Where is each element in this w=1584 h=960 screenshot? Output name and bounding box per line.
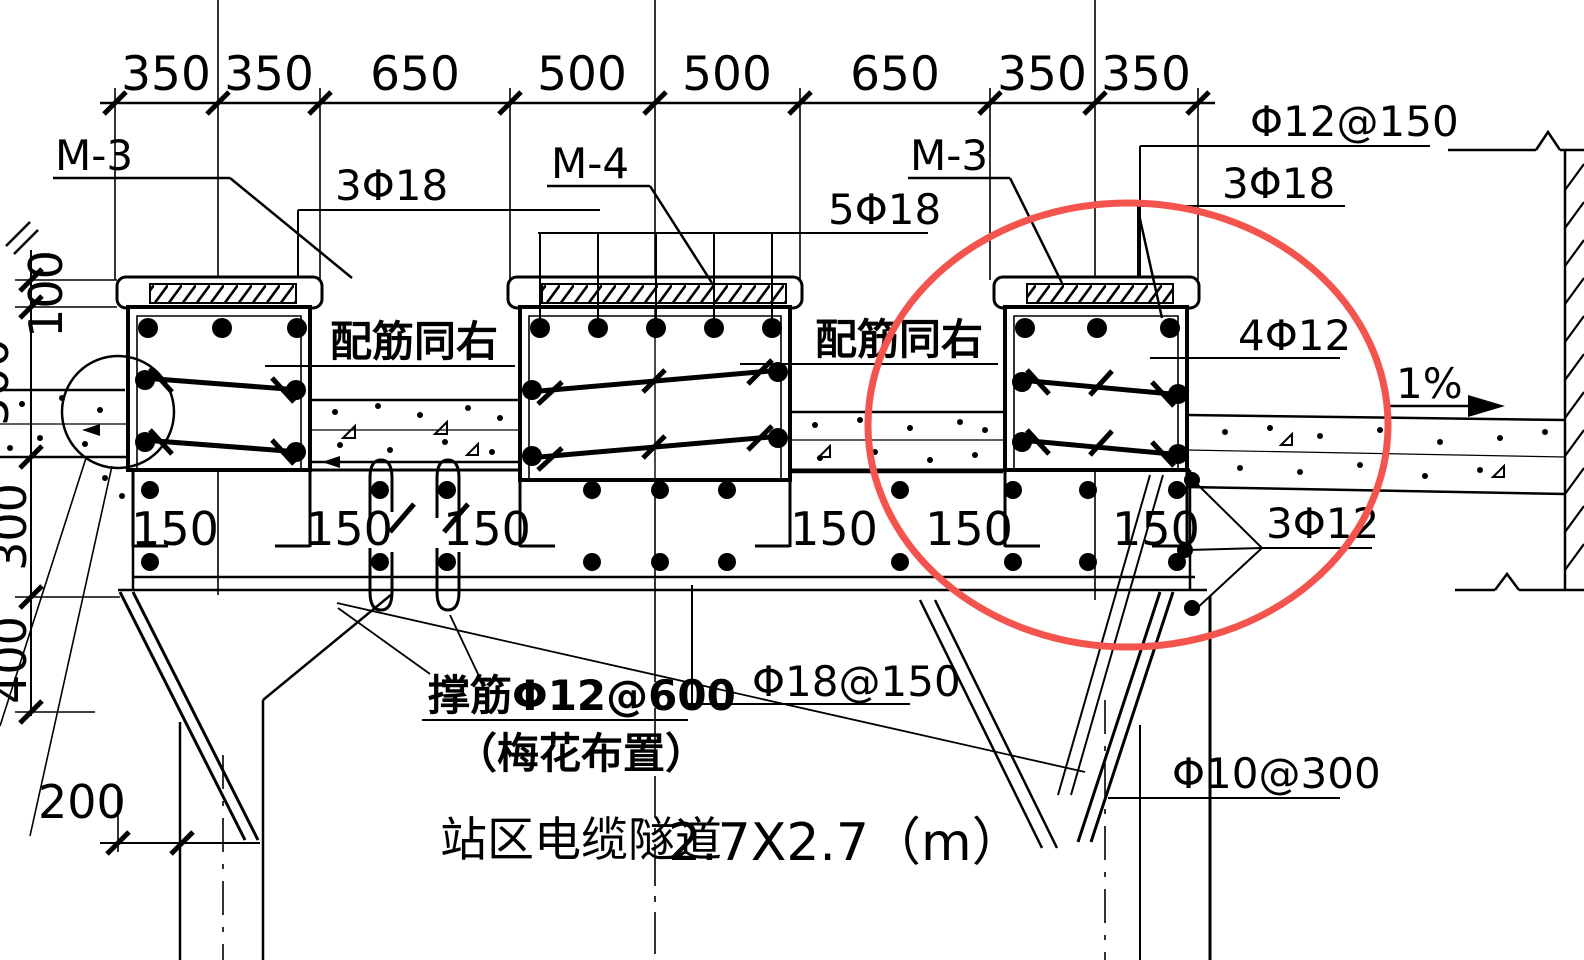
label-d12-150: Φ12@150 (1250, 97, 1459, 146)
dim-650-1: 650 (370, 47, 460, 102)
label-chair-bars: 撑筋Φ12@600 (428, 671, 736, 720)
tunnel-section-drawing: 350 350 650 500 500 650 350 350 100 500 … (0, 0, 1584, 960)
left-dimension-chain: 100 500 300 400 (0, 222, 128, 723)
label-slope-1pct: 1% (1396, 359, 1463, 408)
beam-left (117, 277, 322, 470)
dim-350-3: 350 (997, 47, 1087, 102)
dim-350-2: 350 (224, 47, 314, 102)
label-d18-150: Φ18@150 (752, 657, 961, 706)
top-dimension-chain: 350 350 650 500 500 650 350 350 (100, 47, 1215, 280)
dim-650-2: 650 (850, 47, 940, 102)
existing-wall-right (1448, 132, 1584, 590)
label-m3-left: M-3 (55, 131, 133, 180)
title-size: 2.7X2.7（m） (668, 813, 1024, 873)
label-m4: M-4 (551, 139, 629, 188)
label-4d12: 4Φ12 (1238, 311, 1351, 360)
dim-500-1: 500 (537, 47, 627, 102)
spacing-150-5: 150 (925, 502, 1013, 556)
dim-100: 100 (19, 250, 73, 338)
spacing-150-4: 150 (790, 502, 878, 556)
dim-200-group: 200 (38, 775, 260, 854)
spacing-150-1: 150 (131, 502, 219, 556)
label-chair-bars-note: （梅花布置） (455, 729, 707, 778)
dim-500-left: 500 (0, 338, 19, 426)
label-m3-right: M-3 (910, 131, 988, 180)
dim-500-2: 500 (682, 47, 772, 102)
slab-rebar-dots (141, 481, 1186, 571)
dim-300: 300 (0, 483, 37, 571)
label-same-as-right-left: 配筋同右 (330, 317, 498, 366)
drawing-canvas: 350 350 650 500 500 650 350 350 100 500 … (0, 0, 1584, 960)
label-5d18: 5Φ18 (828, 185, 941, 234)
drawing-title: 站区电缆隧道 2.7X2.7（m） (440, 813, 1024, 873)
left-wall (120, 592, 392, 960)
spacing-150-3: 150 (443, 502, 531, 556)
dim-200: 200 (38, 775, 126, 829)
main-slab: 150 150 150 150 150 150 (118, 460, 1207, 610)
spacing-150-2: 150 (305, 502, 393, 556)
label-3d18-left: 3Φ18 (335, 161, 448, 210)
slope-arrowhead (1468, 395, 1505, 417)
dim-350-4: 350 (1101, 47, 1191, 102)
beam-right (994, 210, 1199, 470)
label-d10-300: Φ10@300 (1172, 749, 1381, 798)
label-3d18-right: 3Φ18 (1222, 159, 1335, 208)
dim-350-1: 350 (121, 47, 211, 102)
